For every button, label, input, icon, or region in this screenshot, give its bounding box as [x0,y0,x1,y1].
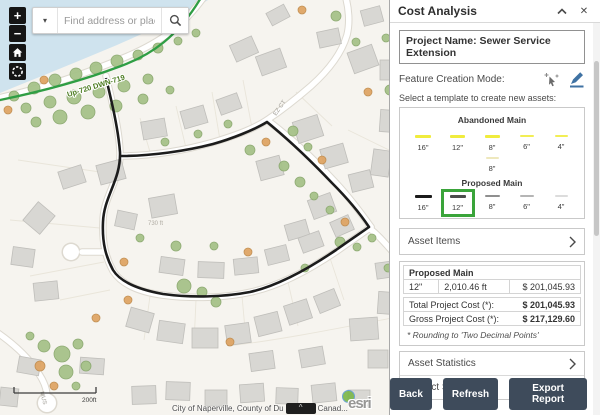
collapse-button[interactable] [554,3,570,19]
chevron-right-icon [569,358,576,370]
draw-tool-button[interactable] [568,71,585,88]
template-proposed-16[interactable]: 16" [409,192,437,215]
asset-cost: $ 201,045.93 [510,282,580,292]
close-button[interactable]: ✕ [576,3,592,19]
search-icon [169,14,182,27]
line-swatch [450,135,465,138]
attribution: City of Naperville, County of Du ^ Canad… [172,403,348,414]
cul-de-sac [63,244,79,260]
esri-logo-text: esri [348,395,371,412]
search-dropdown-button[interactable]: ▾ [33,8,58,33]
template-abandoned-12[interactable]: 12" [444,132,472,154]
locate-button[interactable] [9,63,26,80]
panel-footer-buttons: Back Refresh Export Report [390,378,587,410]
asset-group-header: Proposed Main [404,266,580,280]
search-box[interactable]: ▾ [32,7,189,34]
gross-cost-row: Gross Project Cost (*): $ 217,129.60 [404,312,580,325]
chevron-right-icon [569,236,576,248]
asset-cost-table: Proposed Main 12" 2,010.46 ft $ 201,045.… [399,261,585,346]
map[interactable]: Up-720 DWN-719 EZ CT MUS 730 ft 200ft ▾ … [0,0,389,415]
template-proposed-12-selected[interactable]: 12" [444,192,472,215]
gross-cost-label: Gross Project Cost (*): [404,314,517,324]
chevron-down-icon: ▾ [43,16,47,25]
search-button[interactable] [161,8,188,33]
template-abandoned-4[interactable]: 4" [547,132,575,154]
template-proposed-6[interactable]: 6" [513,192,541,215]
esri-logo: esri [344,393,386,415]
attribution-expand-button[interactable]: ^ [286,403,316,414]
template-abandoned-8[interactable]: 8" [478,132,506,154]
magic-wand-icon [544,72,560,88]
line-swatch [520,135,534,137]
attribution-text: City of Naperville, County of Du [172,404,284,413]
total-cost-value: $ 201,045.93 [517,300,580,310]
total-cost-label: Total Project Cost (*): [404,300,517,310]
template-group-title: Proposed Main [404,178,580,188]
line-swatch [555,195,568,197]
pencil-icon [568,71,585,88]
line-swatch [415,135,431,138]
feature-creation-mode-label: Feature Creation Mode: [399,74,544,85]
table-row: 12" 2,010.46 ft $ 201,045.93 [404,280,580,293]
rounding-footnote: * Rounding to 'Two Decimal Points' [403,326,581,342]
line-swatch [485,195,500,198]
template-label: 4" [558,202,565,211]
asset-size: 12" [404,280,439,293]
zoom-in-button[interactable]: + [9,7,26,24]
template-abandoned-8b[interactable]: 8" [478,154,506,175]
line-swatch [450,195,466,198]
template-abandoned-6[interactable]: 6" [513,132,541,154]
template-abandoned-16[interactable]: 16" [409,132,437,154]
zoom-out-button[interactable]: − [9,25,26,42]
asset-statistics-toggle[interactable]: Asset Statistics [400,352,584,375]
chevron-up-icon [557,8,567,15]
template-label: 16" [417,203,428,212]
asset-statistics-label: Asset Statistics [408,358,569,369]
asset-length: 2,010.46 ft [439,280,509,293]
template-label: 8" [489,143,496,152]
template-label: 16" [417,143,428,152]
export-report-button[interactable]: Export Report [509,378,587,410]
back-button[interactable]: Back [390,378,432,410]
template-prompt: Select a template to create new assets: [399,93,585,103]
total-cost-row: Total Project Cost (*): $ 201,045.93 [404,298,580,312]
template-label: 4" [558,142,565,151]
search-input[interactable] [58,8,161,33]
template-label: 8" [489,164,496,173]
template-label: 12" [452,203,463,212]
project-name-box: Project Name: Sewer Service Extension [399,30,585,64]
scale-bar-label: 200ft [82,397,97,404]
line-swatch [415,195,432,199]
template-label: 12" [452,143,463,152]
gross-cost-value: $ 217,129.60 [517,314,580,324]
refresh-button[interactable]: Refresh [443,378,498,410]
locate-icon [11,65,24,78]
template-gallery: Abandoned Main 16" 12" 8" 6" [399,107,585,219]
template-group-title: Abandoned Main [404,115,580,125]
panel-title: Cost Analysis [398,4,548,18]
template-proposed-8[interactable]: 8" [478,192,506,215]
home-button[interactable] [9,44,26,61]
auto-select-tool-button[interactable] [544,72,560,88]
panel-scrollbar[interactable] [593,23,600,415]
line-swatch [486,157,499,159]
asset-items-label: Asset Items [408,236,569,247]
home-icon [12,47,23,58]
template-proposed-4[interactable]: 4" [547,192,575,215]
line-swatch [555,135,568,137]
feature-creation-mode-row: Feature Creation Mode: [399,69,585,89]
scrollbar-thumb[interactable] [594,61,599,236]
map-canvas[interactable]: Up-720 DWN-719 EZ CT MUS 730 ft 200ft [0,0,389,415]
asset-items-toggle[interactable]: Asset Items [399,228,585,255]
line-swatch [520,195,534,197]
template-label: 8" [489,202,496,211]
parcel-dimension-label: 730 ft [148,221,163,227]
template-label: 6" [523,202,530,211]
cost-analysis-panel: Cost Analysis ✕ Project Name: Sewer Serv… [389,0,600,415]
panel-body: Project Name: Sewer Service Extension Fe… [390,23,587,415]
line-swatch [485,135,500,138]
template-label: 6" [523,142,530,151]
panel-header: Cost Analysis ✕ [390,0,600,23]
